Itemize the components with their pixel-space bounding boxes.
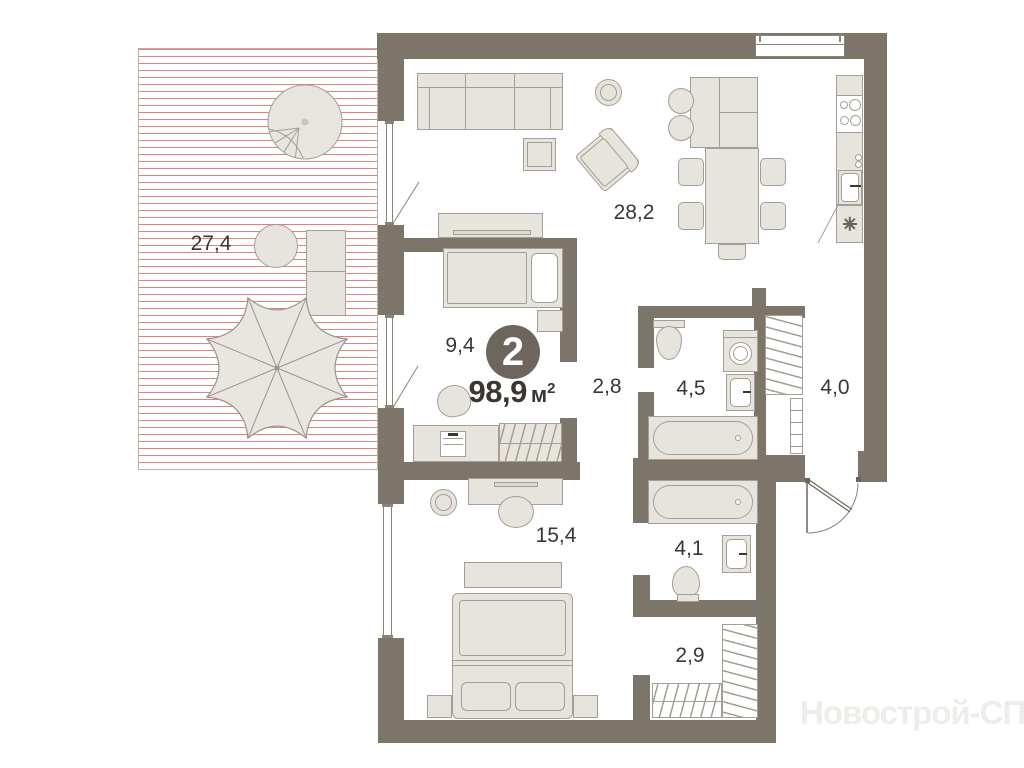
umbrella-icon: [207, 298, 347, 438]
counter-diagonal: [818, 205, 838, 243]
door-swing-line: [392, 366, 418, 409]
door-swing-line: [392, 182, 419, 225]
floor-plan: 28,2: [0, 0, 1024, 768]
spiral-stairs-icon: [268, 85, 342, 159]
entrance-door-icon: [805, 477, 861, 533]
watermark: Новострой-СПб: [800, 694, 1018, 732]
plan-overlay: [0, 0, 1024, 768]
